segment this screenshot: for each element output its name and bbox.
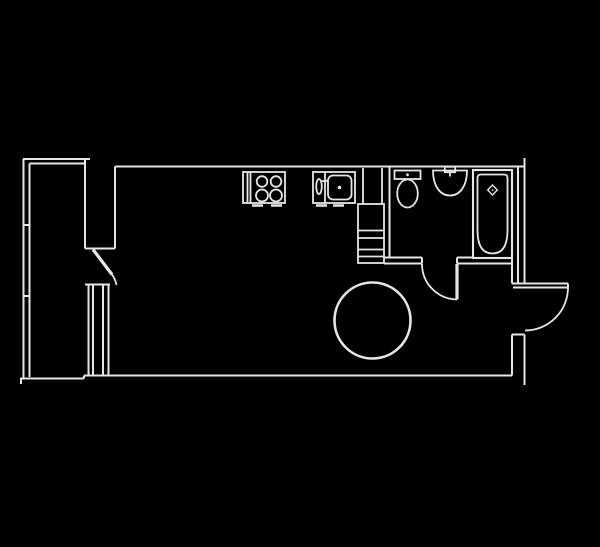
stove-icon — [243, 172, 285, 206]
kitchen-sink-icon — [313, 172, 355, 206]
floor-plan-canvas: 116 — [0, 0, 600, 547]
burner — [256, 190, 268, 202]
bathtub-inner — [478, 175, 508, 254]
bathroom-walls — [384, 167, 525, 284]
balcony-door — [93, 250, 117, 286]
burner — [271, 176, 282, 187]
washbasin-icon — [433, 167, 467, 196]
unit-number: 116 — [343, 294, 403, 350]
stove-edge — [248, 172, 251, 203]
unit-badge-circle — [335, 283, 411, 359]
entrance-door-leaf — [513, 284, 568, 288]
burner — [257, 176, 268, 187]
entrance-door-swing-arc — [525, 288, 568, 331]
unit-number-badge: 116 — [335, 283, 411, 359]
east-wall — [512, 158, 525, 385]
shaft-box — [358, 204, 384, 263]
toilet-bowl — [397, 180, 418, 208]
toilet-button — [406, 173, 409, 176]
ventilation-shaft — [358, 168, 384, 263]
shaft-rungs — [358, 231, 384, 257]
walls — [21, 158, 525, 385]
sink-drain — [338, 186, 342, 190]
balcony-door-leaf — [93, 250, 112, 275]
bathroom-door-swing-arc — [422, 264, 457, 300]
basin-faucet — [445, 167, 455, 172]
burner — [270, 190, 282, 202]
loggia-outline — [21, 159, 90, 384]
shaft-neck — [363, 168, 382, 204]
toilet-icon — [395, 171, 421, 208]
bathtub-icon — [473, 170, 512, 258]
faucet — [316, 179, 322, 194]
entrance-door — [513, 284, 568, 331]
west-wall — [85, 167, 115, 249]
balcony-door-swing-arc — [112, 275, 117, 286]
floor-plan: 116 — [0, 0, 600, 547]
balcony-window — [85, 285, 110, 376]
bathtub-drain-dot — [492, 189, 494, 191]
window-frame — [85, 285, 110, 376]
bathroom-door — [422, 264, 457, 300]
